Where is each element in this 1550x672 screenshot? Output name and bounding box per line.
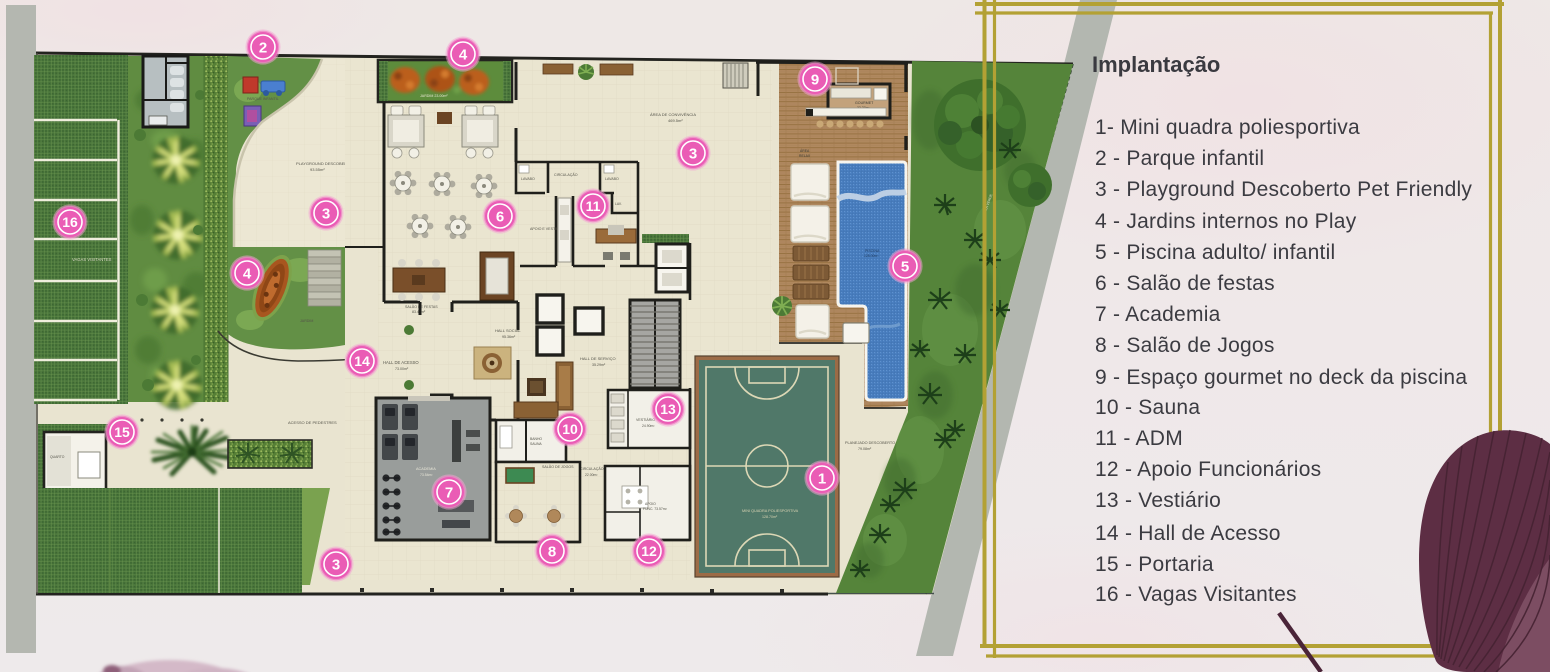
svg-text:11: 11 — [586, 198, 601, 214]
svg-text:6: 6 — [496, 208, 504, 225]
svg-text:2: 2 — [259, 39, 267, 56]
svg-text:RELAX: RELAX — [799, 154, 811, 158]
svg-text:24.90m²: 24.90m² — [642, 424, 655, 428]
svg-text:ÁREA: ÁREA — [800, 149, 810, 153]
svg-text:SALÃO DE FESTAS: SALÃO DE FESTAS — [405, 304, 438, 309]
svg-text:LAV.: LAV. — [615, 202, 622, 206]
svg-text:10: 10 — [562, 421, 578, 437]
svg-text:8: 8 — [548, 543, 556, 560]
svg-text:ÁREA DE CONVIVÊNCIA: ÁREA DE CONVIVÊNCIA — [650, 112, 696, 117]
svg-text:4: 4 — [243, 265, 252, 282]
svg-text:9: 9 — [811, 71, 819, 88]
svg-text:HALL DE ACESSO: HALL DE ACESSO — [383, 360, 419, 365]
svg-text:1- Mini quadra poliesportiva: 1- Mini quadra poliesportiva — [1095, 116, 1360, 139]
svg-text:3: 3 — [689, 145, 697, 162]
svg-text:1: 1 — [818, 470, 826, 487]
svg-text:APOIO E VESTIR: APOIO E VESTIR — [530, 227, 559, 231]
svg-text:CIRCULAÇÃO: CIRCULAÇÃO — [580, 466, 604, 471]
svg-text:4: 4 — [459, 46, 468, 63]
svg-text:HALL DE SERVIÇO: HALL DE SERVIÇO — [580, 356, 616, 361]
svg-text:ACADEMIA: ACADEMIA — [416, 467, 436, 471]
svg-text:13 - Vestiário: 13 - Vestiário — [1095, 489, 1221, 512]
svg-text:35.29m²: 35.29m² — [592, 363, 606, 367]
svg-text:QUARTO: QUARTO — [50, 455, 65, 459]
svg-text:7 - Academia: 7 - Academia — [1095, 303, 1221, 326]
svg-text:VAGAS VISITANTES: VAGAS VISITANTES — [72, 257, 112, 262]
svg-text:79.08m²: 79.08m² — [858, 447, 872, 451]
svg-text:SALÃO DE JOGOS: SALÃO DE JOGOS — [542, 464, 574, 469]
svg-text:95.36m²: 95.36m² — [502, 335, 516, 339]
svg-text:CIRCULAÇÃO: CIRCULAÇÃO — [554, 172, 578, 177]
svg-text:3: 3 — [332, 556, 340, 573]
svg-text:10 - Sauna: 10 - Sauna — [1095, 396, 1200, 419]
svg-text:MINI QUADRA POLIESPORTIVA: MINI QUADRA POLIESPORTIVA — [742, 509, 799, 513]
svg-text:14: 14 — [354, 353, 370, 369]
svg-text:4 - Jardins internos no Play: 4 - Jardins internos no Play — [1095, 210, 1357, 233]
svg-text:14 - Hall de Acesso: 14 - Hall de Acesso — [1095, 522, 1281, 545]
svg-text:73.54m²: 73.54m² — [420, 473, 433, 477]
svg-text:15: 15 — [114, 424, 130, 440]
svg-text:LAVABO: LAVABO — [605, 177, 619, 181]
svg-text:73.00m²: 73.00m² — [395, 367, 409, 371]
svg-text:16 - Vagas Visitantes: 16 - Vagas Visitantes — [1095, 583, 1297, 606]
svg-text:22.00m²: 22.00m² — [585, 473, 598, 477]
svg-text:7: 7 — [445, 484, 453, 501]
svg-text:128.70m²: 128.70m² — [762, 515, 778, 519]
svg-text:13: 13 — [660, 401, 676, 417]
svg-text:8 - Salão de Jogos: 8 - Salão de Jogos — [1095, 334, 1275, 357]
svg-text:6 - Salão de festas: 6 - Salão de festas — [1095, 272, 1275, 295]
svg-text:12 - Apoio Funcionários: 12 - Apoio Funcionários — [1095, 458, 1321, 481]
svg-text:3 - Playground Descoberto Pet: 3 - Playground Descoberto Pet Friendly — [1095, 178, 1472, 201]
svg-text:3: 3 — [322, 205, 330, 222]
svg-text:12: 12 — [641, 543, 657, 559]
svg-text:93.55m²: 93.55m² — [310, 167, 325, 172]
svg-text:FUNC. 73.57m²: FUNC. 73.57m² — [643, 507, 668, 511]
svg-text:11 - ADM: 11 - ADM — [1095, 427, 1183, 450]
svg-text:2 - Parque infantil: 2 - Parque infantil — [1095, 147, 1264, 170]
svg-text:16: 16 — [62, 214, 78, 230]
svg-text:GOURMET: GOURMET — [855, 101, 874, 105]
svg-text:APOIO: APOIO — [645, 502, 656, 506]
svg-text:LAVABO: LAVABO — [521, 177, 535, 181]
svg-text:469.5m²: 469.5m² — [668, 118, 683, 123]
svg-text:128.00m²: 128.00m² — [864, 254, 879, 258]
svg-text:PARQUE INFANTIL: PARQUE INFANTIL — [247, 97, 279, 101]
svg-text:ACESSO DE PEDESTRES: ACESSO DE PEDESTRES — [288, 420, 337, 425]
svg-text:PISCINA: PISCINA — [865, 249, 880, 253]
svg-text:Implantação: Implantação — [1092, 52, 1220, 77]
svg-text:PLAYGROUND DESCOBERTO: PLAYGROUND DESCOBERTO — [296, 161, 353, 166]
svg-text:15 - Portaria: 15 - Portaria — [1095, 553, 1214, 576]
svg-text:9 - Espaço gourmet no deck da: 9 - Espaço gourmet no deck da piscina — [1095, 366, 1467, 389]
svg-text:JARDIM 23.00m²: JARDIM 23.00m² — [420, 94, 448, 98]
svg-text:SAUNA: SAUNA — [530, 442, 542, 446]
svg-text:VESTIÁRIO: VESTIÁRIO — [636, 418, 655, 422]
svg-text:HALL SOCIAL: HALL SOCIAL — [495, 328, 521, 333]
svg-text:PLANEJADO DESCOBERTO: PLANEJADO DESCOBERTO — [845, 441, 895, 445]
svg-text:JARDIM: JARDIM — [300, 319, 313, 323]
svg-text:5: 5 — [901, 258, 909, 275]
svg-text:5 - Piscina adulto/ infantil: 5 - Piscina adulto/ infantil — [1095, 241, 1335, 264]
svg-text:BANHO: BANHO — [530, 437, 542, 441]
